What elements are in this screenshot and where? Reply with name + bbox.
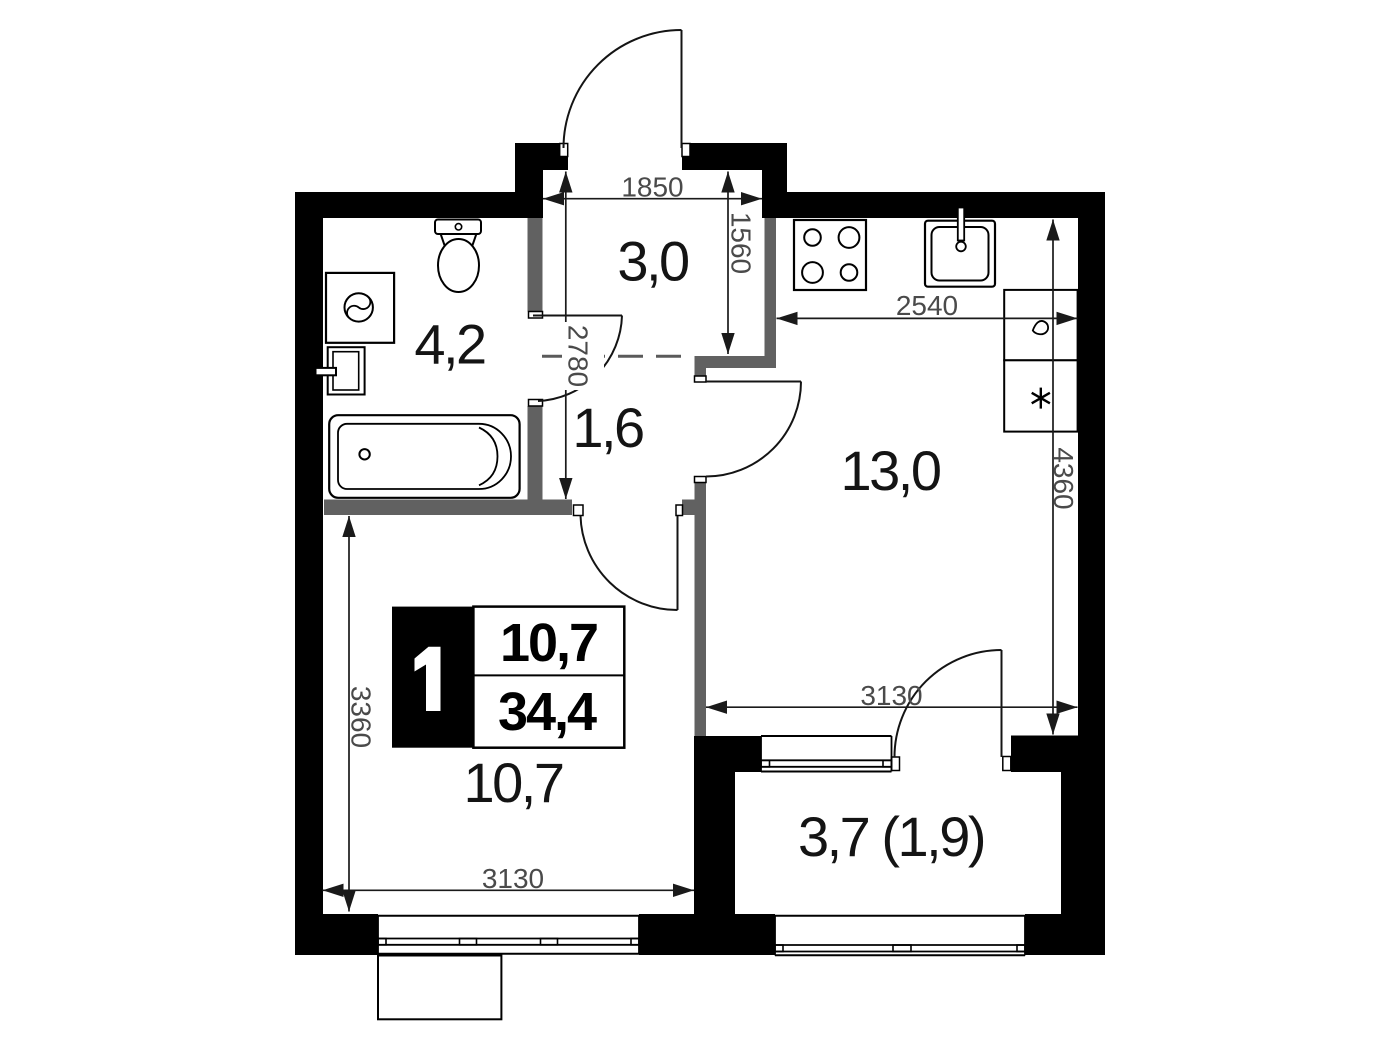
svg-text:1850: 1850: [621, 172, 683, 203]
svg-text:3360: 3360: [346, 686, 377, 748]
svg-text:34,4: 34,4: [498, 682, 597, 742]
svg-text:3,7 (1,9): 3,7 (1,9): [798, 805, 984, 868]
svg-text:2780: 2780: [563, 325, 594, 387]
svg-text:4,2: 4,2: [414, 313, 485, 376]
svg-text:3,0: 3,0: [617, 229, 688, 292]
svg-text:3130: 3130: [482, 863, 544, 894]
svg-text:2540: 2540: [896, 290, 958, 321]
svg-text:1560: 1560: [726, 212, 757, 274]
svg-text:13,0: 13,0: [841, 439, 940, 502]
svg-text:10,7: 10,7: [464, 751, 563, 814]
svg-text:3130: 3130: [860, 680, 922, 711]
svg-text:1,6: 1,6: [572, 396, 643, 459]
svg-text:10,7: 10,7: [500, 613, 597, 673]
svg-text:4360: 4360: [1048, 447, 1079, 509]
